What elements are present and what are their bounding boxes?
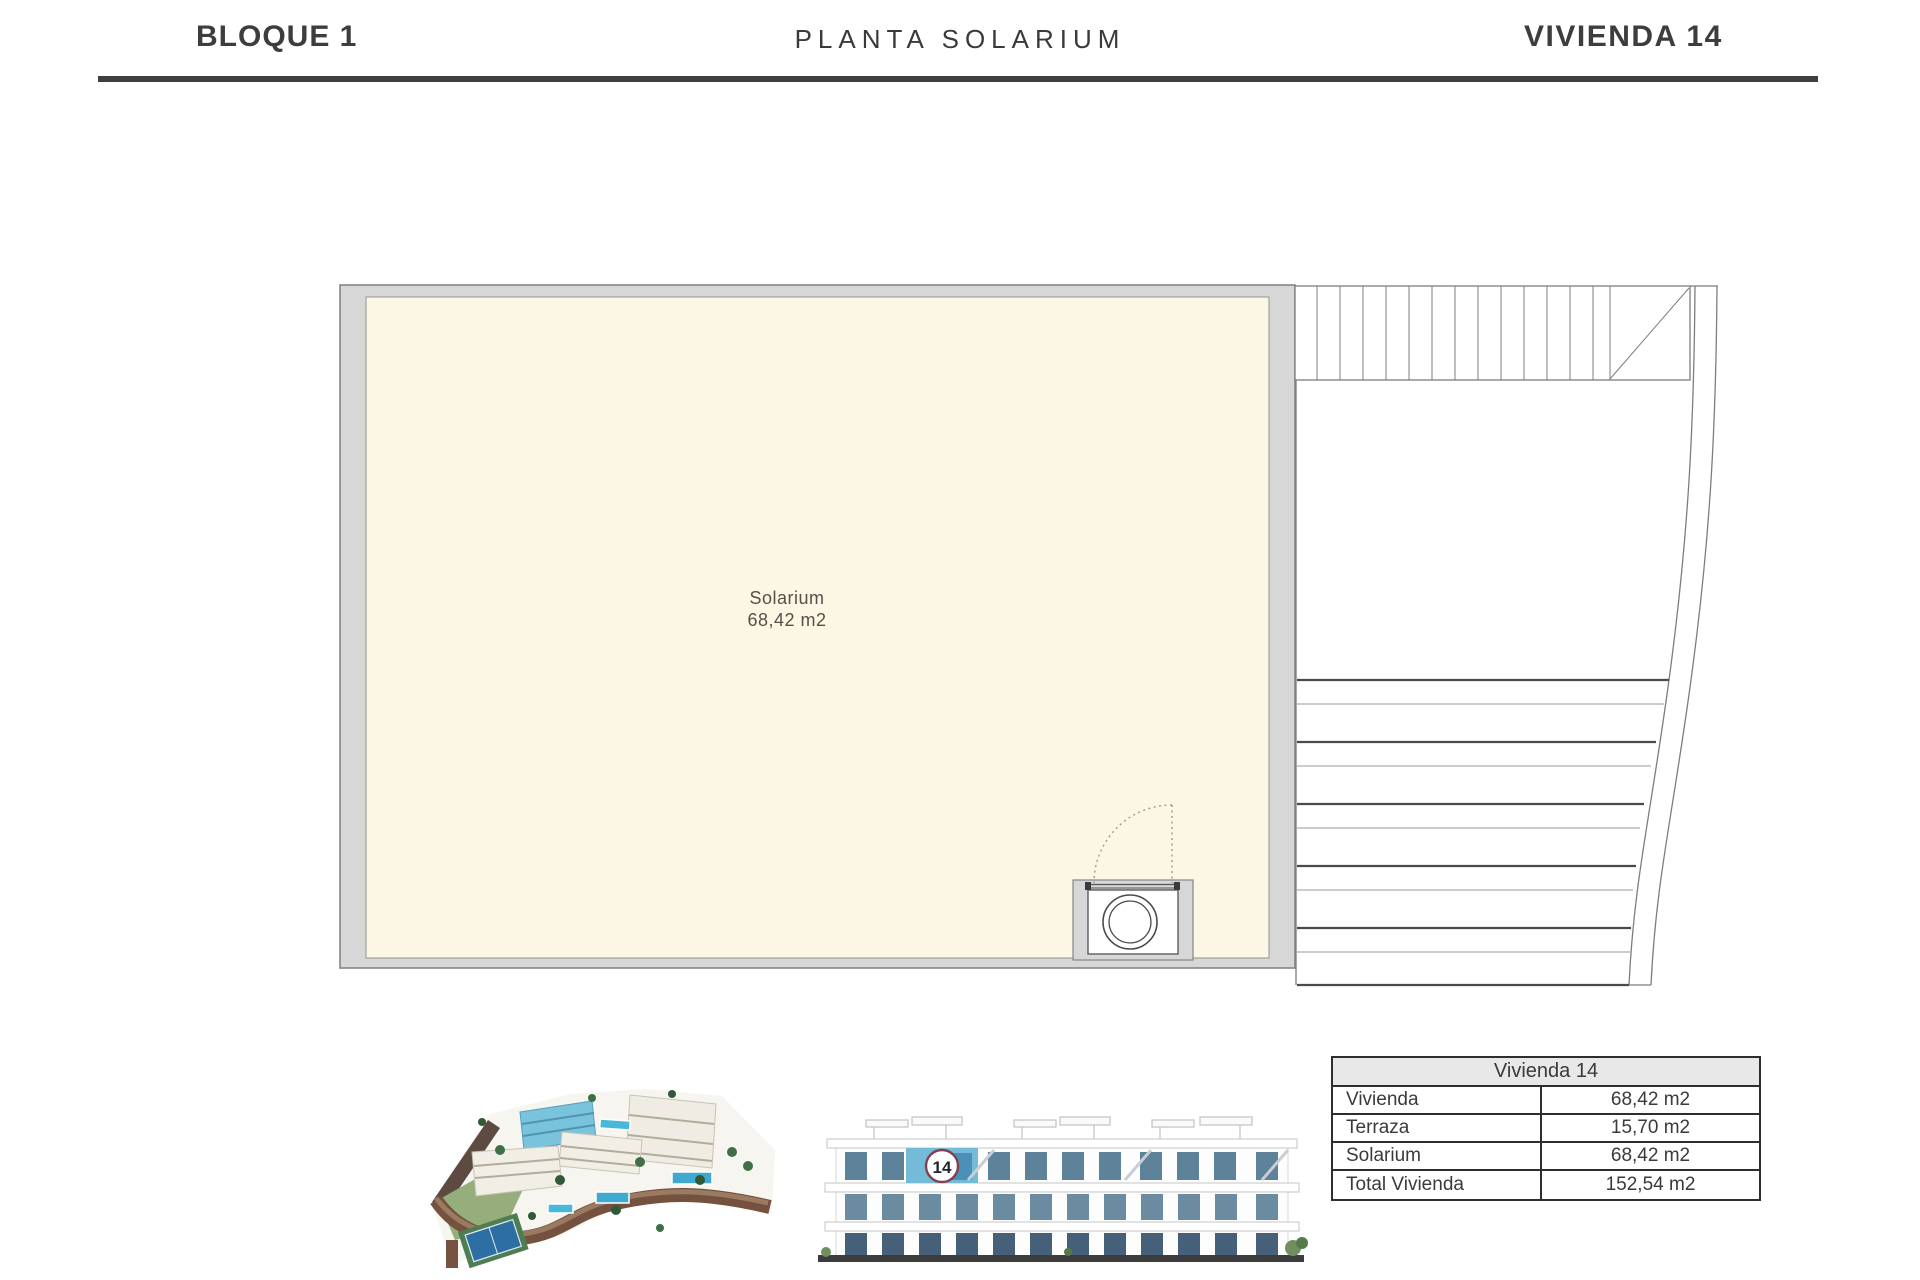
unit-badge-number: 14 — [933, 1158, 952, 1177]
unit-badge: 14 — [926, 1150, 958, 1182]
jacuzzi-icon — [1103, 895, 1157, 949]
site-aerial-render — [432, 1089, 775, 1268]
room-area-text: 68,42 m2 — [747, 610, 826, 630]
row-label: Terraza — [1333, 1115, 1542, 1141]
table-row: Terraza 15,70 m2 — [1333, 1115, 1759, 1143]
table-row: Total Vivienda 152,54 m2 — [1333, 1171, 1759, 1199]
row-label: Total Vivienda — [1333, 1171, 1542, 1199]
curved-facade-wall — [1629, 286, 1717, 985]
row-value: 15,70 m2 — [1542, 1115, 1759, 1141]
row-value: 68,42 m2 — [1542, 1087, 1759, 1113]
table-row: Solarium 68,42 m2 — [1333, 1143, 1759, 1171]
area-summary-table: Vivienda 14 Vivienda 68,42 m2 Terraza 15… — [1331, 1056, 1761, 1201]
row-value: 152,54 m2 — [1542, 1171, 1759, 1199]
lower-staircase — [1296, 380, 1669, 985]
room-name-text: Solarium — [749, 588, 824, 608]
row-value: 68,42 m2 — [1542, 1143, 1759, 1169]
table-row: Vivienda 68,42 m2 — [1333, 1087, 1759, 1115]
row-label: Solarium — [1333, 1143, 1542, 1169]
upper-staircase — [1295, 286, 1718, 380]
row-label: Vivienda — [1333, 1087, 1542, 1113]
table-title: Vivienda 14 — [1333, 1058, 1759, 1087]
building-elevation: 14 — [818, 1117, 1308, 1262]
roof-pergolas — [866, 1117, 1252, 1140]
